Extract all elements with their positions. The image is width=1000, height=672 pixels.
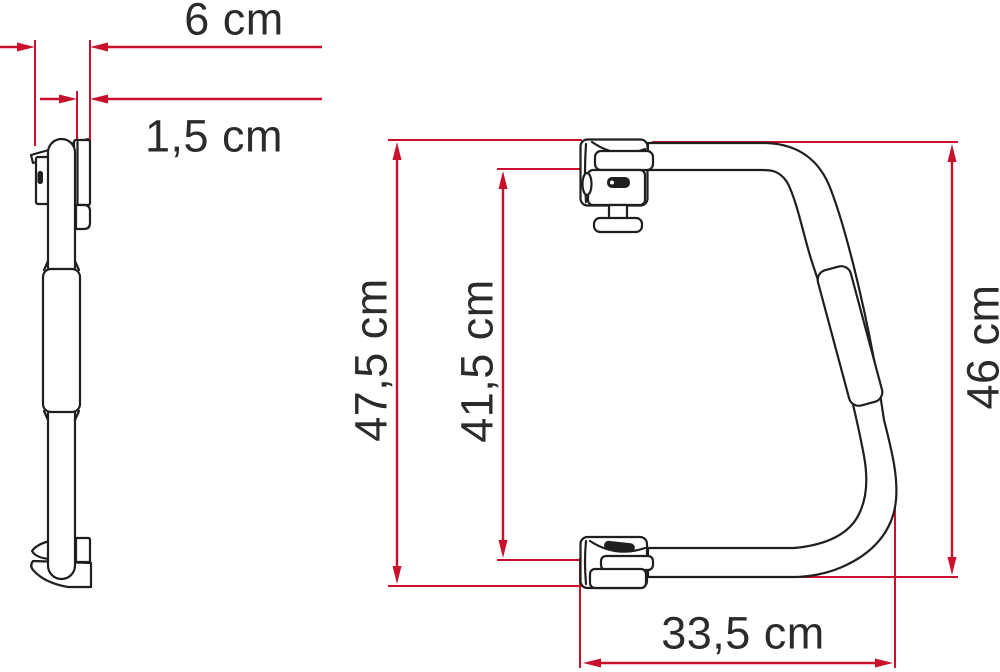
dimension-arrow-right-icon	[875, 659, 893, 668]
technical-drawing: 6 cm 1,5 cm 47,5 cm 41,5 cm 46 cm 33,5 c…	[0, 0, 1000, 672]
side-view	[31, 139, 91, 587]
dimension-label-handle-height: 46 cm	[961, 284, 1000, 409]
dimension-arrow-down-icon	[948, 557, 957, 575]
top-bracket-knob	[594, 218, 642, 232]
side-lower-plate	[76, 538, 90, 562]
dimension-arrow-up-icon	[948, 144, 957, 162]
dimension-41-5cm	[497, 169, 584, 560]
dimension-arrow-left-icon	[90, 95, 108, 104]
dimension-arrow-right-icon	[17, 43, 35, 52]
dimension-label-hook-thickness: 1,5 cm	[145, 114, 283, 159]
side-notch	[76, 205, 90, 229]
top-bracket-bar	[595, 151, 653, 170]
dimension-arrow-left-icon	[583, 659, 601, 668]
bottom-bracket-body	[590, 569, 646, 588]
dimension-label-mount-depth: 6 cm	[184, 0, 284, 42]
front-view	[581, 140, 897, 589]
dimension-label-overall-height: 47,5 cm	[349, 278, 394, 442]
side-left-logo	[38, 171, 44, 184]
dimension-arrow-up-icon	[393, 142, 402, 160]
dimension-arrow-up-icon	[499, 171, 508, 189]
dimension-arrow-down-icon	[393, 566, 402, 584]
dimension-label-bottom-width: 33,5 cm	[661, 611, 825, 656]
side-grip	[43, 269, 80, 412]
dimension-label-inner-height: 41,5 cm	[455, 279, 500, 443]
handle-grip	[815, 264, 884, 408]
top-bracket-tab	[583, 173, 592, 195]
dimension-arrow-left-icon	[90, 43, 108, 52]
dimension-arrow-right-icon	[59, 95, 77, 104]
dimension-arrow-down-icon	[499, 540, 508, 558]
